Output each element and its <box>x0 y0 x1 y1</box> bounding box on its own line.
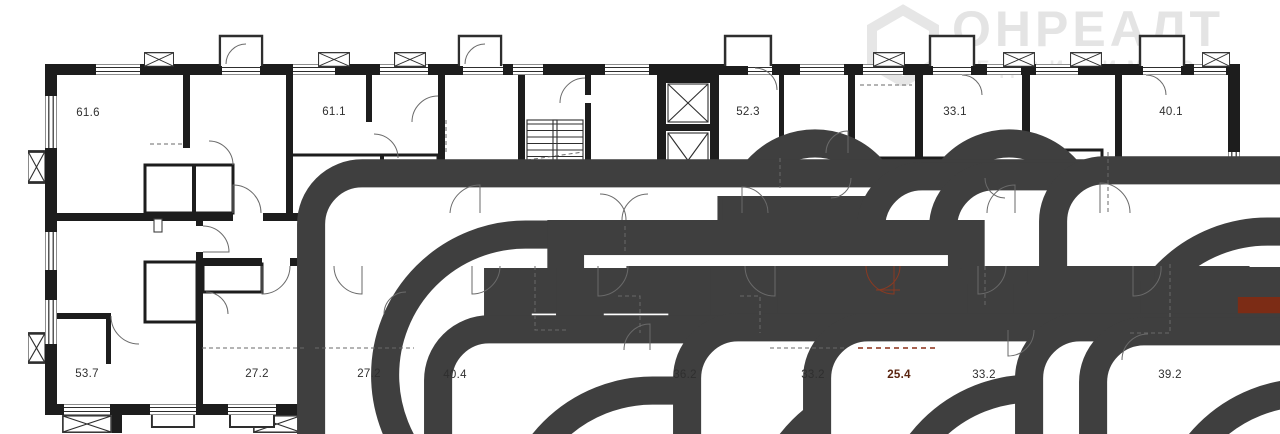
area-label-33-2-a: 33.2 <box>801 369 825 381</box>
area-label-27-2-a: 27.2 <box>245 368 269 380</box>
area-label-52-3: 52.3 <box>736 106 760 118</box>
area-label-33-1: 33.1 <box>943 106 967 118</box>
floor-plan-screenshot: ОНРЕАЛТ НЕДВИЖИМОСТЬ <box>0 0 1280 434</box>
floor-plan-drawing <box>0 0 1280 434</box>
area-label-25-4-highlighted: 25.4 <box>887 369 911 381</box>
area-label-36-2: 36.2 <box>673 369 697 381</box>
area-label-61-1: 61.1 <box>322 106 346 118</box>
area-label-40-4: 40.4 <box>443 369 467 381</box>
panel-icon <box>154 219 162 232</box>
area-label-61-6: 61.6 <box>76 107 100 119</box>
area-label-40-1: 40.1 <box>1159 106 1183 118</box>
bathtub-icon <box>1093 331 1280 434</box>
area-label-27-2-b: 27.2 <box>357 368 381 380</box>
area-label-39-2: 39.2 <box>1158 369 1182 381</box>
area-label-53-7: 53.7 <box>75 368 99 380</box>
area-label-33-2-b: 33.2 <box>972 369 996 381</box>
elevator-icon <box>668 84 708 122</box>
